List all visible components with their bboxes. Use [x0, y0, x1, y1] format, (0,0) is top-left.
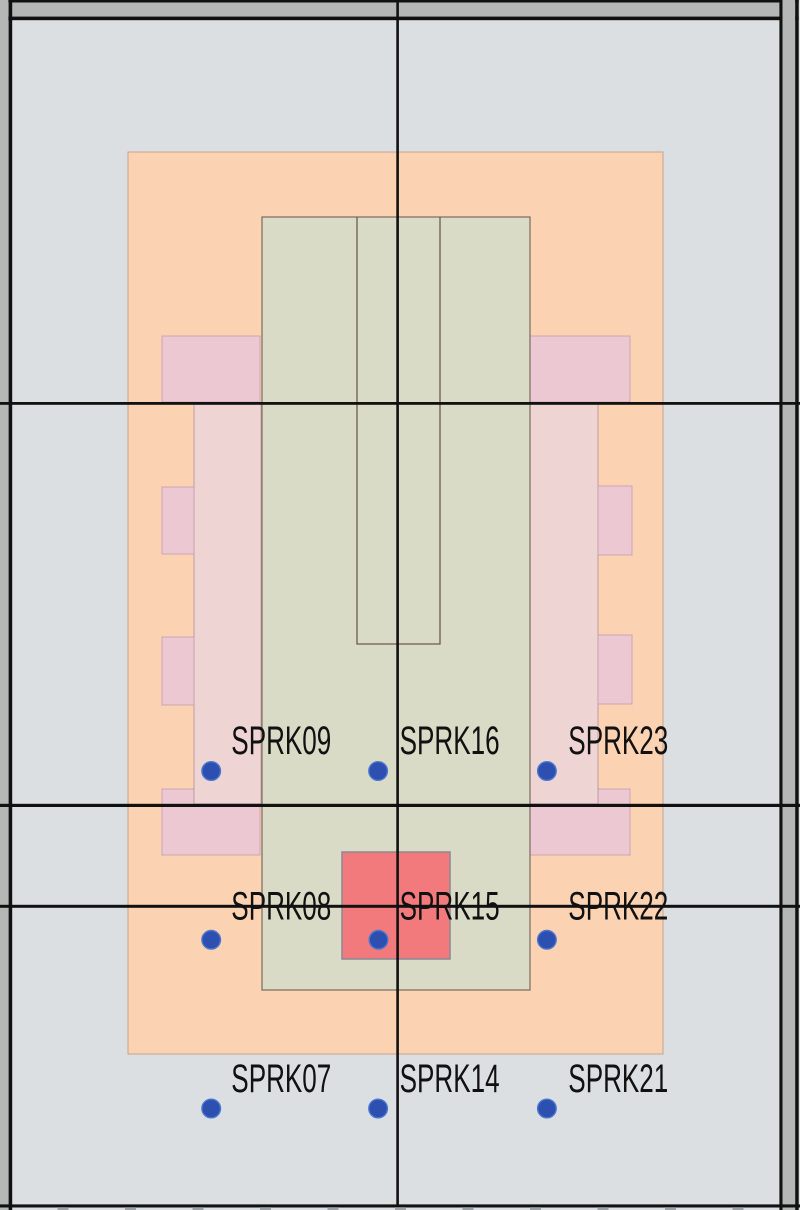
svg-text:SPRK15: SPRK15 [400, 883, 500, 928]
svg-text:SPRK16: SPRK16 [400, 718, 500, 763]
svg-text:SPRK22: SPRK22 [568, 883, 668, 928]
svg-text:SPRK14: SPRK14 [400, 1056, 500, 1101]
svg-text:SPRK09: SPRK09 [231, 718, 331, 763]
svg-text:SPRK21: SPRK21 [568, 1056, 668, 1101]
svg-text:SPRK08: SPRK08 [231, 883, 331, 928]
svg-text:SPRK07: SPRK07 [231, 1056, 331, 1101]
svg-text:SPRK23: SPRK23 [568, 718, 668, 763]
